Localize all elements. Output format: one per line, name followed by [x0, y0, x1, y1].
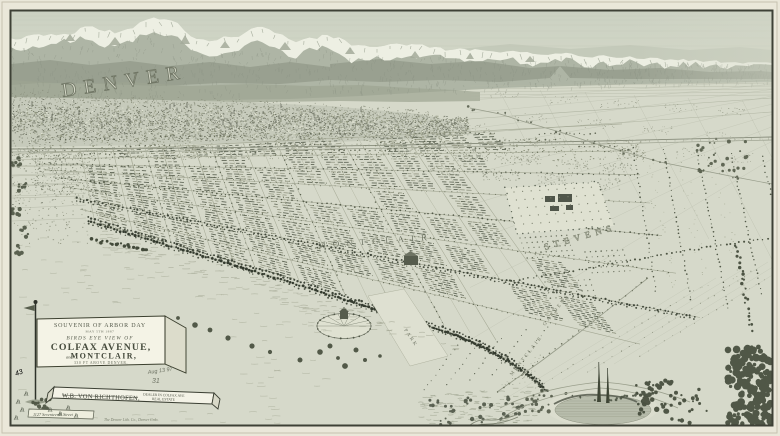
- svg-text:SOUVENIR OF ARBOR DAY: SOUVENIR OF ARBOR DAY: [54, 323, 146, 329]
- svg-text:1127 Seventeenth Street: 1127 Seventeenth Street: [33, 412, 74, 417]
- svg-text:MONTCLAIR,: MONTCLAIR,: [71, 352, 138, 361]
- svg-text:31: 31: [152, 378, 160, 385]
- svg-text:REAL ESTATE: REAL ESTATE: [152, 397, 176, 402]
- svg-text:MAY 5TH 1887: MAY 5TH 1887: [86, 330, 115, 334]
- svg-text:and: and: [66, 355, 74, 360]
- svg-text:BIRDS EYE VIEW OF: BIRDS EYE VIEW OF: [66, 336, 133, 342]
